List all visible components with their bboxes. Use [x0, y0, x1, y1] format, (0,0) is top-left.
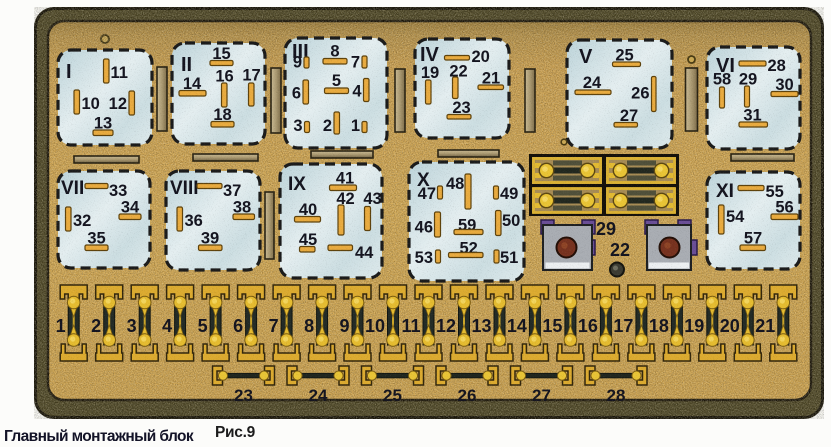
svg-text:Главный монтажный блок: Главный монтажный блок	[4, 428, 194, 445]
svg-text:Рис.9: Рис.9	[215, 424, 256, 441]
